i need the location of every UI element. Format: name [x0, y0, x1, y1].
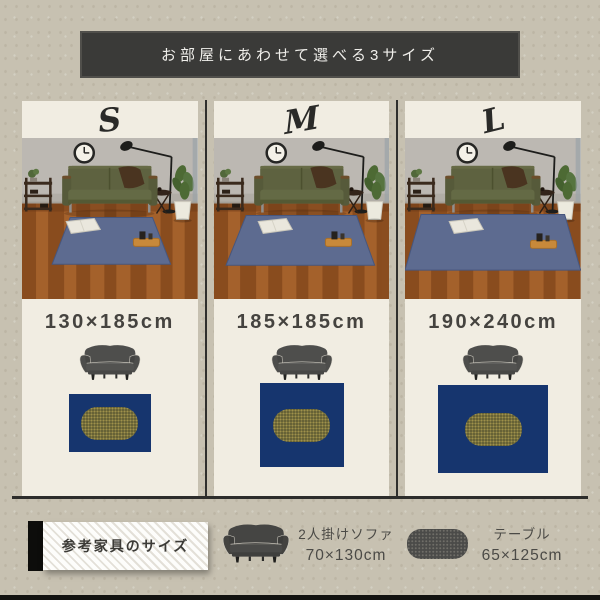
- table-icon: [273, 409, 330, 442]
- photo-rug: [226, 216, 375, 266]
- size-letter-area: M: [284, 101, 319, 138]
- room-photo: [214, 138, 390, 299]
- size-panel-l: L: [405, 101, 581, 496]
- rug-rectangle: [260, 383, 344, 467]
- size-letter-area: L: [482, 101, 505, 138]
- size-columns: S: [22, 101, 581, 496]
- size-letter-area: S: [98, 101, 121, 138]
- banner-title: お部屋にあわせて選べる3サイズ: [161, 44, 439, 65]
- size-dimensions: 185×185cm: [237, 311, 367, 333]
- legend-black-tab: [28, 521, 43, 571]
- legend-sofa-label: 2人掛けソファ 70×130cm: [292, 525, 400, 567]
- legend-title: 参考家具のサイズ: [62, 536, 190, 556]
- legend-sofa-name: 2人掛けソファ: [292, 525, 400, 545]
- size-dimensions: 190×240cm: [428, 311, 558, 333]
- banner: お部屋にあわせて選べる3サイズ: [80, 31, 520, 78]
- size-letter: S: [97, 102, 123, 136]
- wall-clock-icon: [458, 143, 477, 162]
- room-photo: [405, 138, 581, 299]
- scale-diagram: [260, 343, 344, 467]
- room-photo: [22, 138, 198, 299]
- legend-title-box: 参考家具のサイズ: [43, 522, 208, 570]
- scale-diagram: [69, 343, 151, 452]
- rug-rectangle: [69, 394, 151, 452]
- sofa-icon: [270, 343, 334, 382]
- bottom-border-bar: [0, 595, 600, 600]
- scale-diagram: [438, 343, 548, 473]
- legend-sofa-size: 70×130cm: [292, 545, 400, 567]
- horizontal-rule: [12, 496, 588, 499]
- sofa-icon: [461, 343, 525, 382]
- size-panel-s: S: [22, 101, 198, 496]
- table-icon: [81, 407, 138, 440]
- sofa-icon: [78, 343, 142, 382]
- size-letter: L: [478, 101, 508, 137]
- rug-rectangle: [438, 385, 548, 473]
- size-dimensions: 130×185cm: [45, 311, 175, 333]
- legend-sofa-icon: [221, 522, 291, 565]
- wall-clock-icon: [75, 143, 94, 162]
- legend-table-icon: [407, 529, 468, 559]
- column-divider: [205, 100, 207, 498]
- wall-clock-icon: [266, 143, 285, 162]
- size-letter: M: [283, 100, 320, 138]
- legend-table-size: 65×125cm: [475, 545, 569, 567]
- legend-table-name: テーブル: [475, 525, 569, 545]
- column-divider: [396, 100, 398, 498]
- legend-table-label: テーブル 65×125cm: [475, 525, 569, 567]
- size-panel-m: M: [214, 101, 390, 496]
- table-icon: [465, 413, 522, 446]
